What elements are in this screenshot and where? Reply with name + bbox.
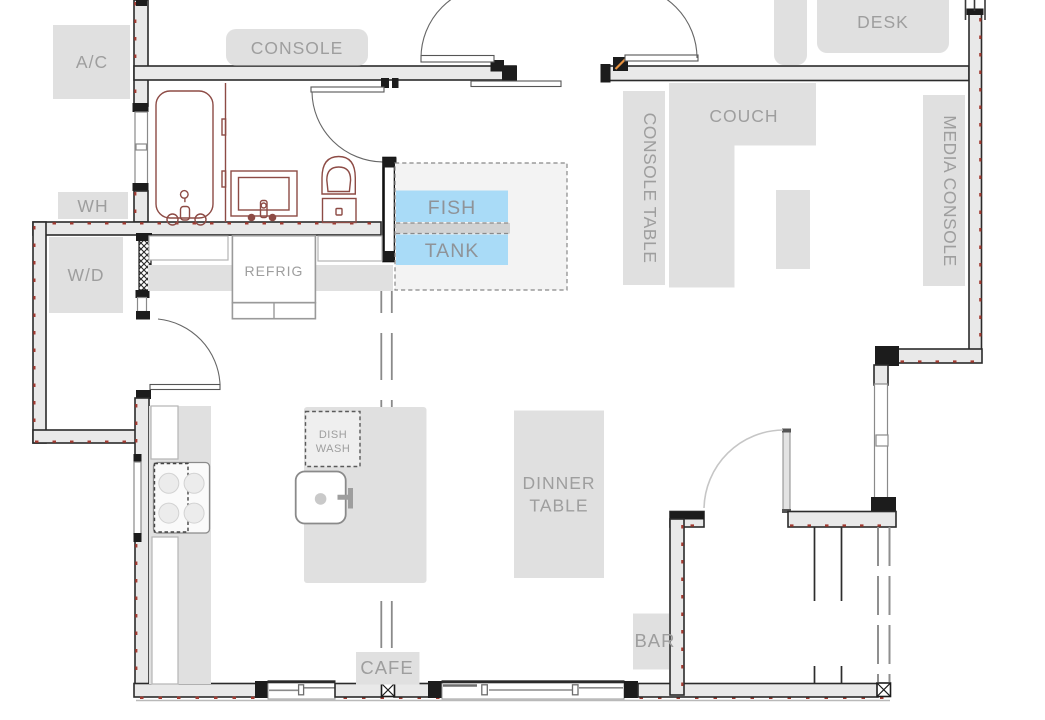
svg-text:REFRIG: REFRIG: [244, 263, 303, 279]
svg-text:DINNER: DINNER: [522, 473, 595, 493]
svg-text:COUCH: COUCH: [709, 106, 778, 126]
svg-text:BAR: BAR: [634, 630, 675, 651]
svg-text:TABLE: TABLE: [529, 496, 588, 516]
svg-text:WASH: WASH: [316, 443, 351, 455]
svg-text:DISH: DISH: [319, 429, 347, 441]
svg-text:A/C: A/C: [76, 52, 108, 72]
svg-text:FISH: FISH: [428, 197, 476, 219]
svg-text:CONSOLE: CONSOLE: [251, 38, 344, 58]
svg-text:DESK: DESK: [857, 12, 909, 32]
svg-text:CAFE: CAFE: [360, 657, 413, 678]
svg-text:MEDIA CONSOLE: MEDIA CONSOLE: [940, 115, 960, 266]
svg-text:WH: WH: [77, 196, 108, 216]
svg-text:TANK: TANK: [425, 240, 480, 262]
svg-text:CONSOLE TABLE: CONSOLE TABLE: [640, 113, 660, 264]
svg-text:W/D: W/D: [67, 265, 104, 285]
